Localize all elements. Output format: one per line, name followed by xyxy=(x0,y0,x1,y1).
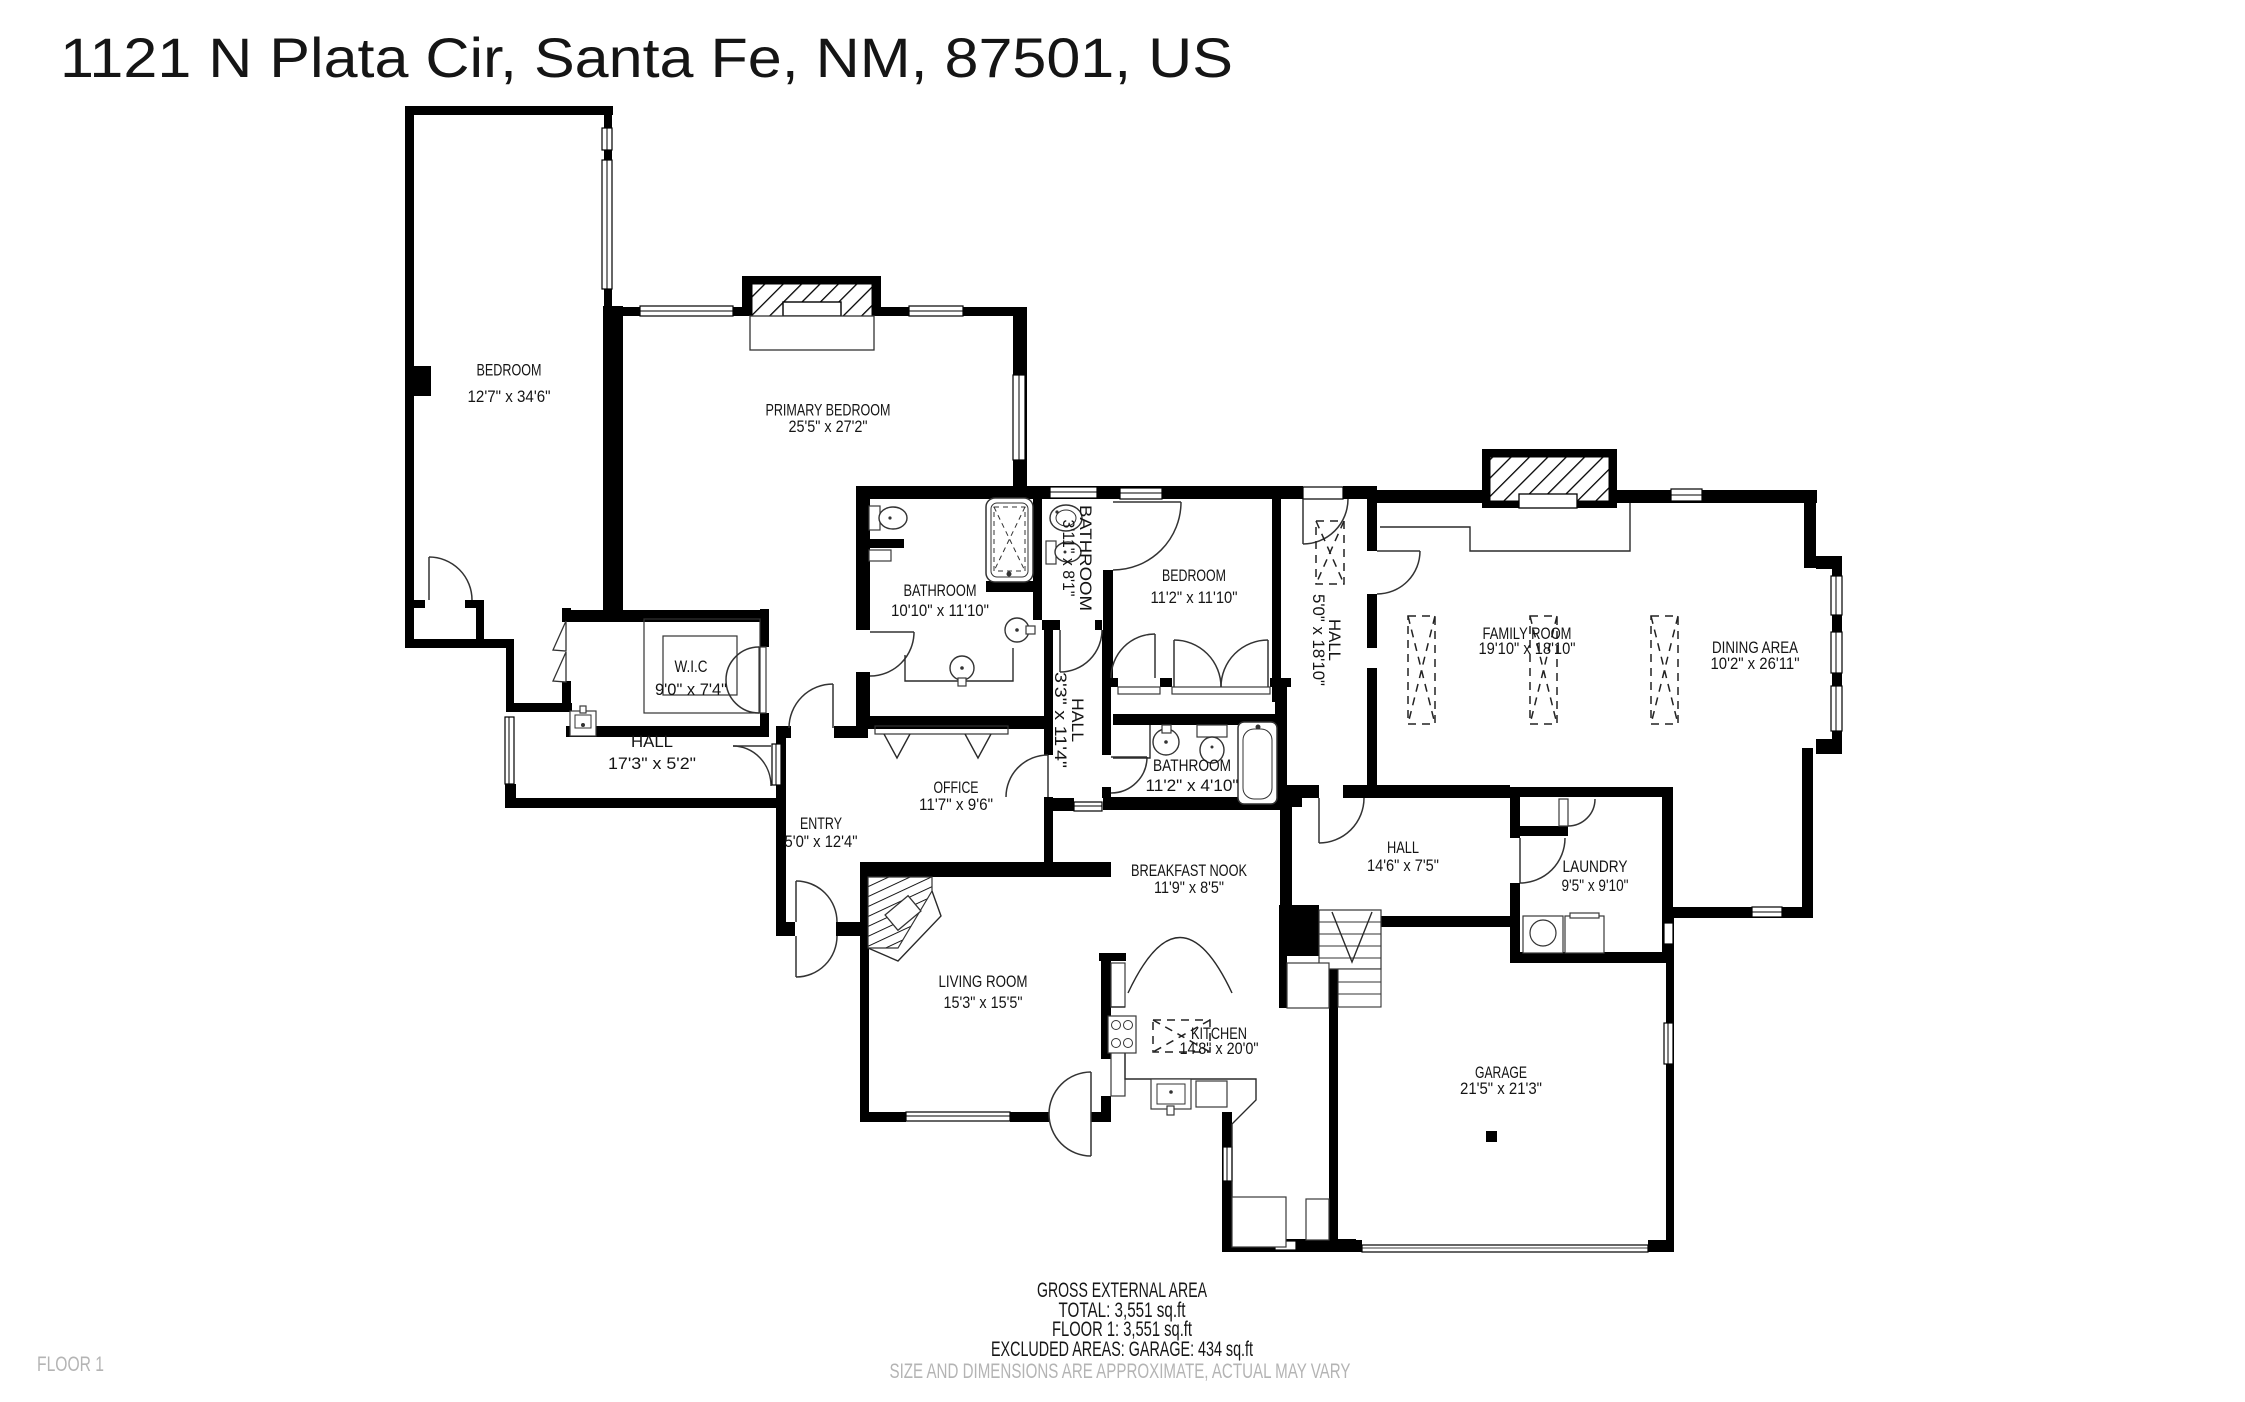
svg-text:14'6" x 7'5": 14'6" x 7'5" xyxy=(1367,857,1439,875)
svg-text:11'9" x 8'5": 11'9" x 8'5" xyxy=(1154,879,1224,897)
svg-text:9'5" x 9'10": 9'5" x 9'10" xyxy=(1562,877,1629,895)
svg-text:5'0" x 12'4": 5'0" x 12'4" xyxy=(785,833,858,851)
svg-text:25'5" x 27'2": 25'5" x 27'2" xyxy=(789,418,868,436)
svg-text:W.I.C: W.I.C xyxy=(675,658,708,676)
svg-text:21'5" x 21'3": 21'5" x 21'3" xyxy=(1460,1080,1542,1098)
svg-text:BREAKFAST NOOK: BREAKFAST NOOK xyxy=(1131,862,1247,880)
svg-text:SIZE AND DIMENSIONS ARE APPROX: SIZE AND DIMENSIONS ARE APPROXIMATE, ACT… xyxy=(890,1359,1351,1383)
svg-text:9'0" x 7'4": 9'0" x 7'4" xyxy=(655,681,727,699)
svg-text:EXCLUDED AREAS: GARAGE: 434 sq: EXCLUDED AREAS: GARAGE: 434 sq.ft xyxy=(991,1337,1253,1361)
svg-text:PRIMARY BEDROOM: PRIMARY BEDROOM xyxy=(766,402,891,420)
svg-text:OFFICE: OFFICE xyxy=(934,779,979,797)
svg-text:BATHROOM: BATHROOM xyxy=(904,582,977,600)
svg-text:BATHROOM: BATHROOM xyxy=(1153,757,1231,775)
svg-text:12'7" x 34'6": 12'7" x 34'6" xyxy=(468,388,551,406)
svg-text:15'3" x 15'5": 15'3" x 15'5" xyxy=(944,994,1023,1012)
svg-text:HALL: HALL xyxy=(631,733,673,751)
svg-text:LIVING ROOM: LIVING ROOM xyxy=(939,973,1028,991)
svg-text:BEDROOM: BEDROOM xyxy=(1162,567,1226,585)
svg-text:11'2" x 4'10": 11'2" x 4'10" xyxy=(1146,777,1239,795)
svg-text:11'2" x 11'10": 11'2" x 11'10" xyxy=(1151,589,1238,607)
svg-text:11'7" x 9'6": 11'7" x 9'6" xyxy=(919,796,993,814)
svg-text:10'10" x 11'10": 10'10" x 11'10" xyxy=(891,602,989,620)
svg-text:BATHROOM3'11" x 8'1": BATHROOM3'11" x 8'1" xyxy=(1059,505,1094,611)
svg-text:LAUNDRY: LAUNDRY xyxy=(1563,858,1628,876)
svg-text:FLOOR 1: FLOOR 1 xyxy=(37,1352,104,1376)
svg-text:BEDROOM: BEDROOM xyxy=(477,362,542,380)
svg-text:17'3" x 5'2": 17'3" x 5'2" xyxy=(608,755,696,773)
svg-text:HALL: HALL xyxy=(1387,839,1419,857)
svg-text:10'2" x 26'11": 10'2" x 26'11" xyxy=(1711,655,1800,673)
svg-text:14'8" x 20'0": 14'8" x 20'0" xyxy=(1180,1040,1259,1058)
svg-text:19'10" x 18'10": 19'10" x 18'10" xyxy=(1479,640,1576,658)
svg-text:1121 N Plata Cir, Santa Fe, NM: 1121 N Plata Cir, Santa Fe, NM, 87501, U… xyxy=(60,26,1233,89)
svg-text:ENTRY: ENTRY xyxy=(800,815,842,833)
